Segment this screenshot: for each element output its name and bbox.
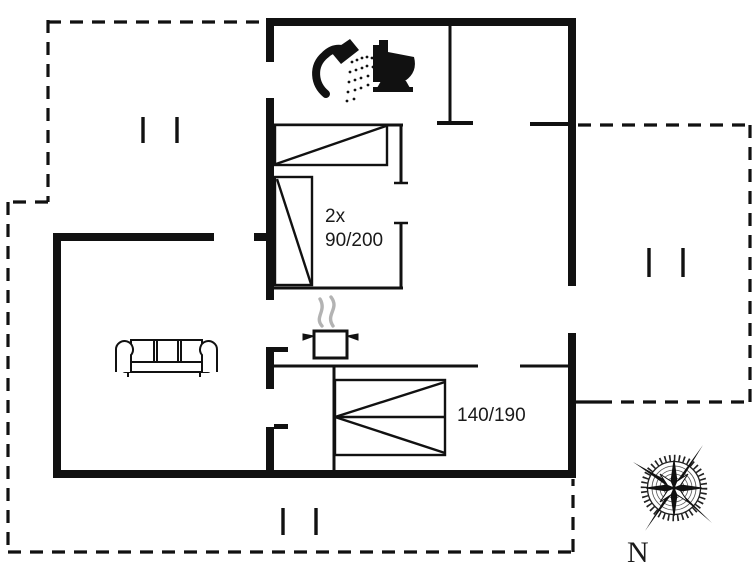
steam-icon bbox=[319, 297, 334, 326]
wall-center-b bbox=[266, 98, 274, 300]
toilet-icon bbox=[373, 40, 415, 92]
sofa-icon bbox=[116, 340, 217, 377]
shower-spray-dots bbox=[346, 56, 375, 103]
shower-icon bbox=[316, 39, 374, 102]
window-tick-pair-top-left bbox=[143, 117, 177, 143]
floor-plan: 2x 90/200 140/190 N bbox=[0, 0, 755, 566]
window-tick-pair-bottom bbox=[283, 508, 316, 535]
single-bed-left bbox=[275, 177, 312, 285]
door-jamb bbox=[274, 347, 288, 352]
wall-center-c bbox=[266, 347, 274, 389]
double-bed bbox=[335, 380, 445, 455]
stove-pot-icon bbox=[303, 331, 358, 358]
wall-left bbox=[53, 233, 61, 478]
wall-center-d bbox=[266, 427, 274, 478]
wall-bottom bbox=[53, 470, 576, 478]
wall-right-lower bbox=[568, 333, 576, 478]
wall-right-upper bbox=[568, 18, 576, 286]
label-bed-single-size: 90/200 bbox=[325, 230, 383, 251]
window-tick-pair-right bbox=[649, 248, 683, 277]
label-compass-north: N bbox=[627, 536, 649, 566]
wall-center-a bbox=[266, 18, 274, 62]
single-bed-top bbox=[275, 125, 387, 165]
wall-living-top-left bbox=[53, 233, 214, 241]
label-bed-single-count: 2x bbox=[325, 206, 346, 227]
label-bed-double-size: 140/190 bbox=[457, 405, 526, 426]
compass-rose-icon bbox=[633, 445, 712, 531]
door-jamb bbox=[274, 424, 288, 429]
wall-top bbox=[266, 18, 576, 26]
